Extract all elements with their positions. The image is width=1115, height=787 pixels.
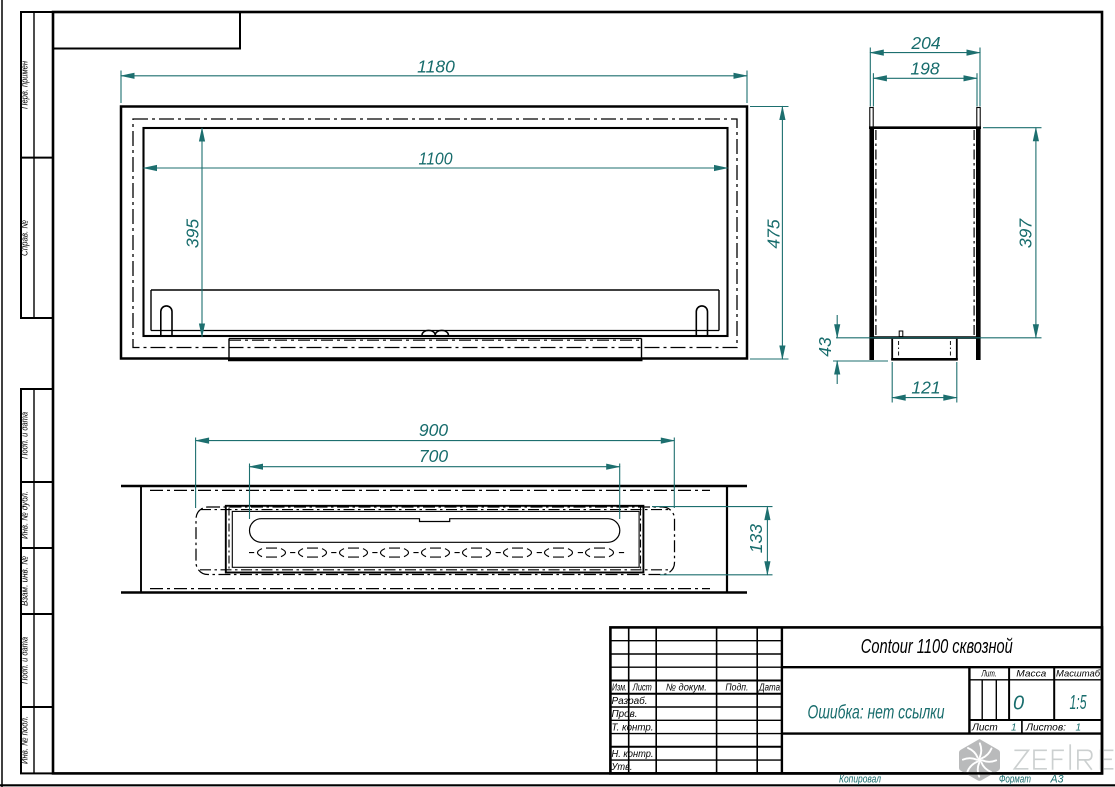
svg-text:0: 0 bbox=[1013, 693, 1024, 715]
svg-text:Н. контр.: Н. контр. bbox=[612, 749, 654, 760]
svg-text:Справ. №: Справ. № bbox=[20, 220, 31, 256]
svg-text:Подп. и дата: Подп. и дата bbox=[20, 637, 31, 684]
svg-text:Лист: Лист bbox=[971, 722, 998, 733]
svg-text:Перв. примен: Перв. примен bbox=[20, 60, 31, 109]
svg-text:700: 700 bbox=[419, 446, 448, 466]
svg-text:Разраб.: Разраб. bbox=[612, 695, 648, 707]
svg-text:Лист: Лист bbox=[632, 683, 652, 694]
svg-text:Изм.: Изм. bbox=[612, 683, 627, 694]
svg-text:Листов:: Листов: bbox=[1025, 722, 1066, 733]
svg-text:Масштаб: Масштаб bbox=[1056, 669, 1101, 680]
svg-text:Формат: Формат bbox=[999, 774, 1031, 786]
svg-text:№ докум.: № докум. bbox=[666, 683, 707, 694]
svg-text:Дата: Дата bbox=[758, 683, 780, 694]
svg-text:900: 900 bbox=[419, 420, 448, 440]
svg-text:204: 204 bbox=[910, 33, 940, 53]
svg-text:Инв. № дубл.: Инв. № дубл. bbox=[20, 491, 31, 539]
svg-text:1100: 1100 bbox=[419, 148, 453, 168]
svg-text:Масса: Масса bbox=[1016, 669, 1046, 680]
svg-text:Пров.: Пров. bbox=[612, 709, 638, 720]
svg-text:А3: А3 bbox=[1050, 774, 1065, 786]
svg-text:Т. контр.: Т. контр. bbox=[612, 722, 654, 733]
svg-text:Утв.: Утв. bbox=[611, 762, 633, 773]
svg-text:Contour 1100 сквозной: Contour 1100 сквозной bbox=[861, 636, 1013, 658]
svg-text:133: 133 bbox=[746, 524, 766, 553]
svg-text:Лит.: Лит. bbox=[981, 669, 997, 680]
svg-text:1: 1 bbox=[1076, 722, 1082, 733]
svg-text:1: 1 bbox=[1011, 722, 1017, 733]
svg-text:475: 475 bbox=[764, 219, 784, 248]
svg-text:1180: 1180 bbox=[417, 56, 455, 76]
svg-text:Инв. № подл.: Инв. № подл. bbox=[20, 716, 31, 764]
svg-text:121: 121 bbox=[911, 377, 940, 397]
svg-text:Копировал: Копировал bbox=[839, 774, 881, 786]
svg-text:397: 397 bbox=[1016, 218, 1036, 248]
svg-text:Ошибка: нет ссылки: Ошибка: нет ссылки bbox=[808, 703, 945, 724]
svg-text:1:5: 1:5 bbox=[1070, 692, 1088, 714]
svg-text:Подп. и дата: Подп. и дата bbox=[20, 412, 31, 459]
svg-text:Подп.: Подп. bbox=[725, 683, 748, 694]
svg-text:198: 198 bbox=[910, 59, 939, 79]
svg-text:43: 43 bbox=[815, 337, 835, 357]
svg-text:Взам. инв. №: Взам. инв. № bbox=[20, 556, 31, 606]
svg-text:395: 395 bbox=[183, 219, 203, 248]
